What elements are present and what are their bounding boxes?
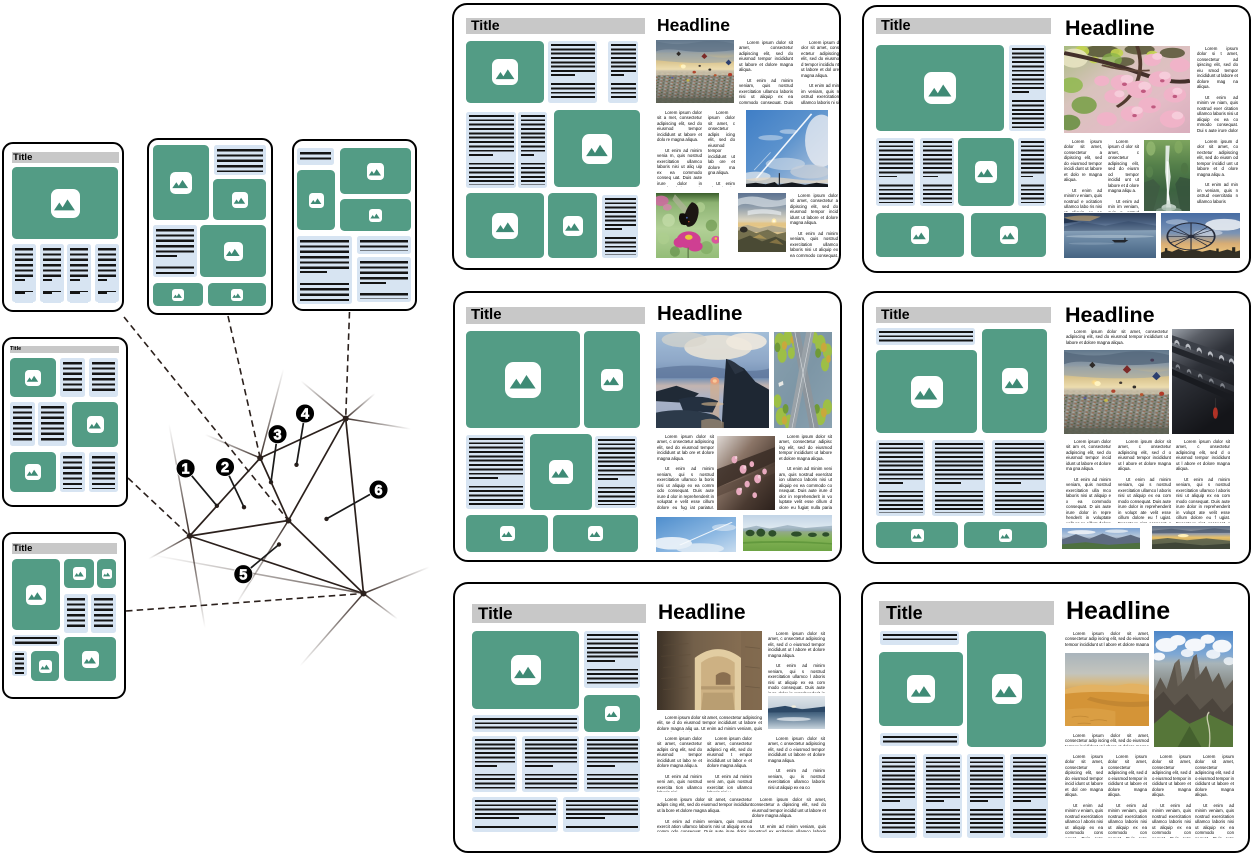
svg-text:1: 1 — [182, 462, 190, 478]
svg-text:6: 6 — [374, 483, 382, 499]
svg-text:5: 5 — [239, 567, 247, 583]
svg-text:3: 3 — [273, 427, 281, 443]
svg-text:2: 2 — [221, 460, 229, 476]
svg-text:4: 4 — [301, 407, 309, 423]
